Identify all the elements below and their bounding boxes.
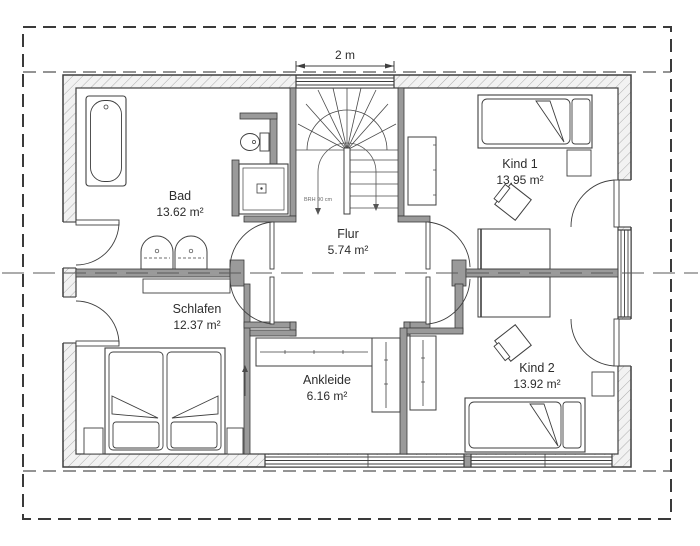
wall-window-pier-bottom xyxy=(464,456,471,467)
single-bed xyxy=(478,95,592,148)
nightstand xyxy=(227,428,243,454)
nightstand xyxy=(84,428,103,454)
wall-ankleide-kind2-top xyxy=(404,328,463,334)
door-leaf xyxy=(614,180,619,227)
dimension-label: 2 m xyxy=(335,48,355,62)
shelf xyxy=(408,137,436,205)
door-leaf xyxy=(270,222,274,269)
room-area-ankleide: 6.16 m² xyxy=(307,389,348,403)
room-label-kind2: Kind 2 xyxy=(519,361,554,375)
floor-plan-drawing: BRH 90 cm 2 m xyxy=(0,0,700,546)
room-area-kind1: 13.95 m² xyxy=(496,173,543,187)
wall-ankleide-top xyxy=(250,330,296,336)
nightstand xyxy=(592,372,614,396)
door-leaf xyxy=(76,220,119,225)
wall-stair-left xyxy=(290,88,296,216)
door-leaf xyxy=(426,222,430,269)
room-area-flur: 5.74 m² xyxy=(328,243,369,257)
room-area-bad: 13.62 m² xyxy=(156,205,203,219)
pillow xyxy=(171,422,217,448)
wall-wc-partition xyxy=(270,113,277,168)
wall-wc-partition-top xyxy=(240,113,277,119)
wall-shower-side xyxy=(232,160,239,216)
sill-height-note: BRH 90 cm xyxy=(304,197,333,203)
door-leaf xyxy=(614,319,619,366)
wardrobe-right xyxy=(372,338,400,412)
door-leaf xyxy=(426,277,430,324)
single-bed xyxy=(465,398,585,452)
room-label-ankleide: Ankleide xyxy=(303,373,351,387)
wardrobe xyxy=(410,336,436,410)
washbasin xyxy=(141,236,173,269)
door-leaf xyxy=(76,341,119,346)
nightstand xyxy=(567,150,591,176)
door-leaf xyxy=(270,277,274,324)
washbasin xyxy=(175,236,207,269)
wall-ankleide-kind2 xyxy=(400,328,407,454)
desk xyxy=(478,277,550,317)
pillow xyxy=(113,422,159,448)
window-top-stair xyxy=(296,75,394,88)
wall-stair-right xyxy=(398,88,404,216)
wardrobe-top xyxy=(256,338,372,366)
pillow xyxy=(563,402,581,448)
room-area-kind2: 13.92 m² xyxy=(513,377,560,391)
desk xyxy=(478,229,550,269)
window-bottom-left xyxy=(265,454,464,467)
toilet xyxy=(241,133,270,151)
floor-plan-canvas: BRH 90 cm 2 m xyxy=(0,0,700,546)
dresser xyxy=(143,279,230,293)
room-area-schlafen: 12.37 m² xyxy=(173,318,220,332)
pillow xyxy=(572,99,590,144)
window-bottom-right xyxy=(471,454,612,467)
double-bed xyxy=(105,348,225,454)
room-label-schlafen: Schlafen xyxy=(173,302,222,316)
stair-spine xyxy=(344,148,350,214)
room-label-kind1: Kind 1 xyxy=(502,157,537,171)
shower xyxy=(239,164,288,214)
room-label-bad: Bad xyxy=(169,189,191,203)
wall-flur-top-right xyxy=(398,216,430,222)
bathtub xyxy=(86,96,126,186)
wall-flur-top-left xyxy=(244,216,296,222)
room-label-flur: Flur xyxy=(337,227,359,241)
